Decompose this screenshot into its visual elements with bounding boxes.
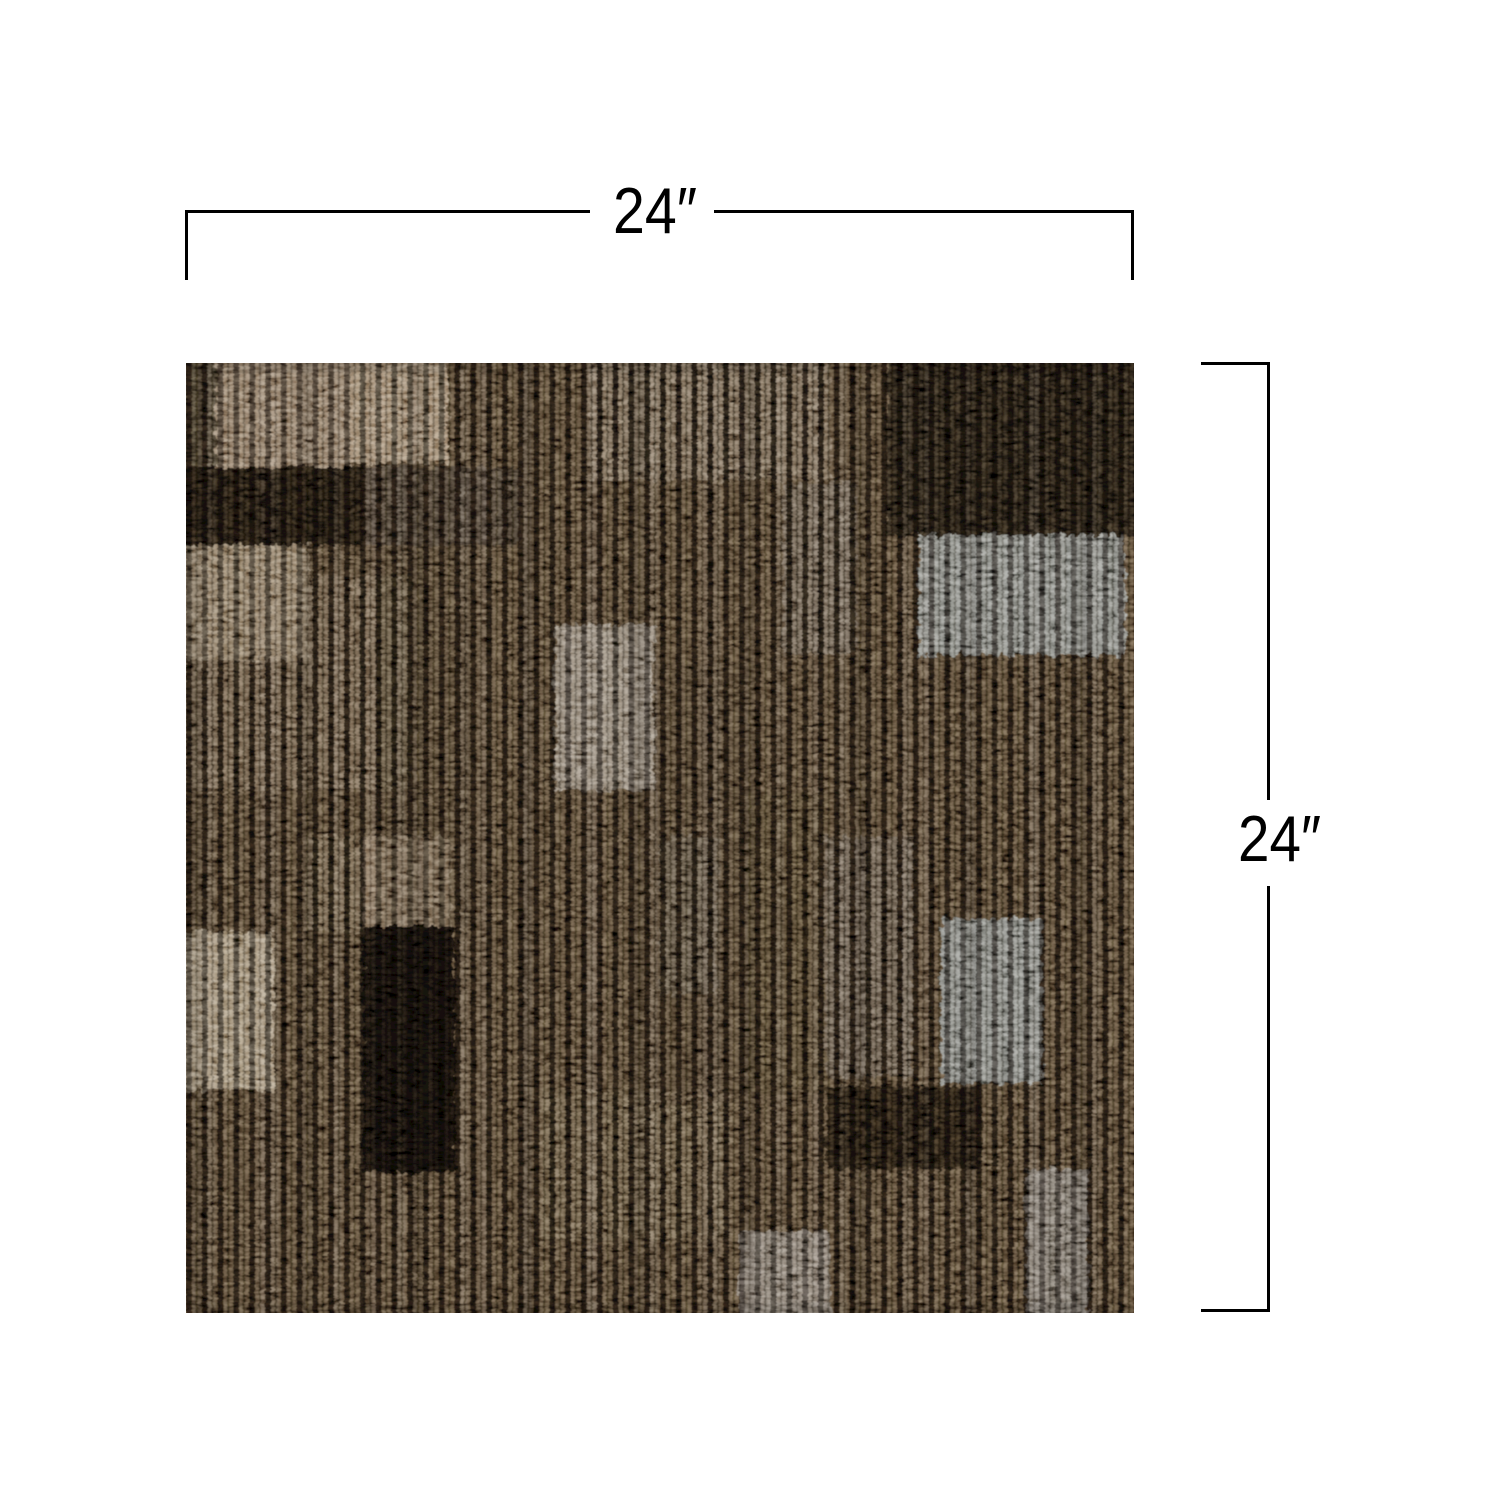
svg-text:24″: 24″ <box>613 174 697 247</box>
svg-text:24″: 24″ <box>1238 802 1321 875</box>
